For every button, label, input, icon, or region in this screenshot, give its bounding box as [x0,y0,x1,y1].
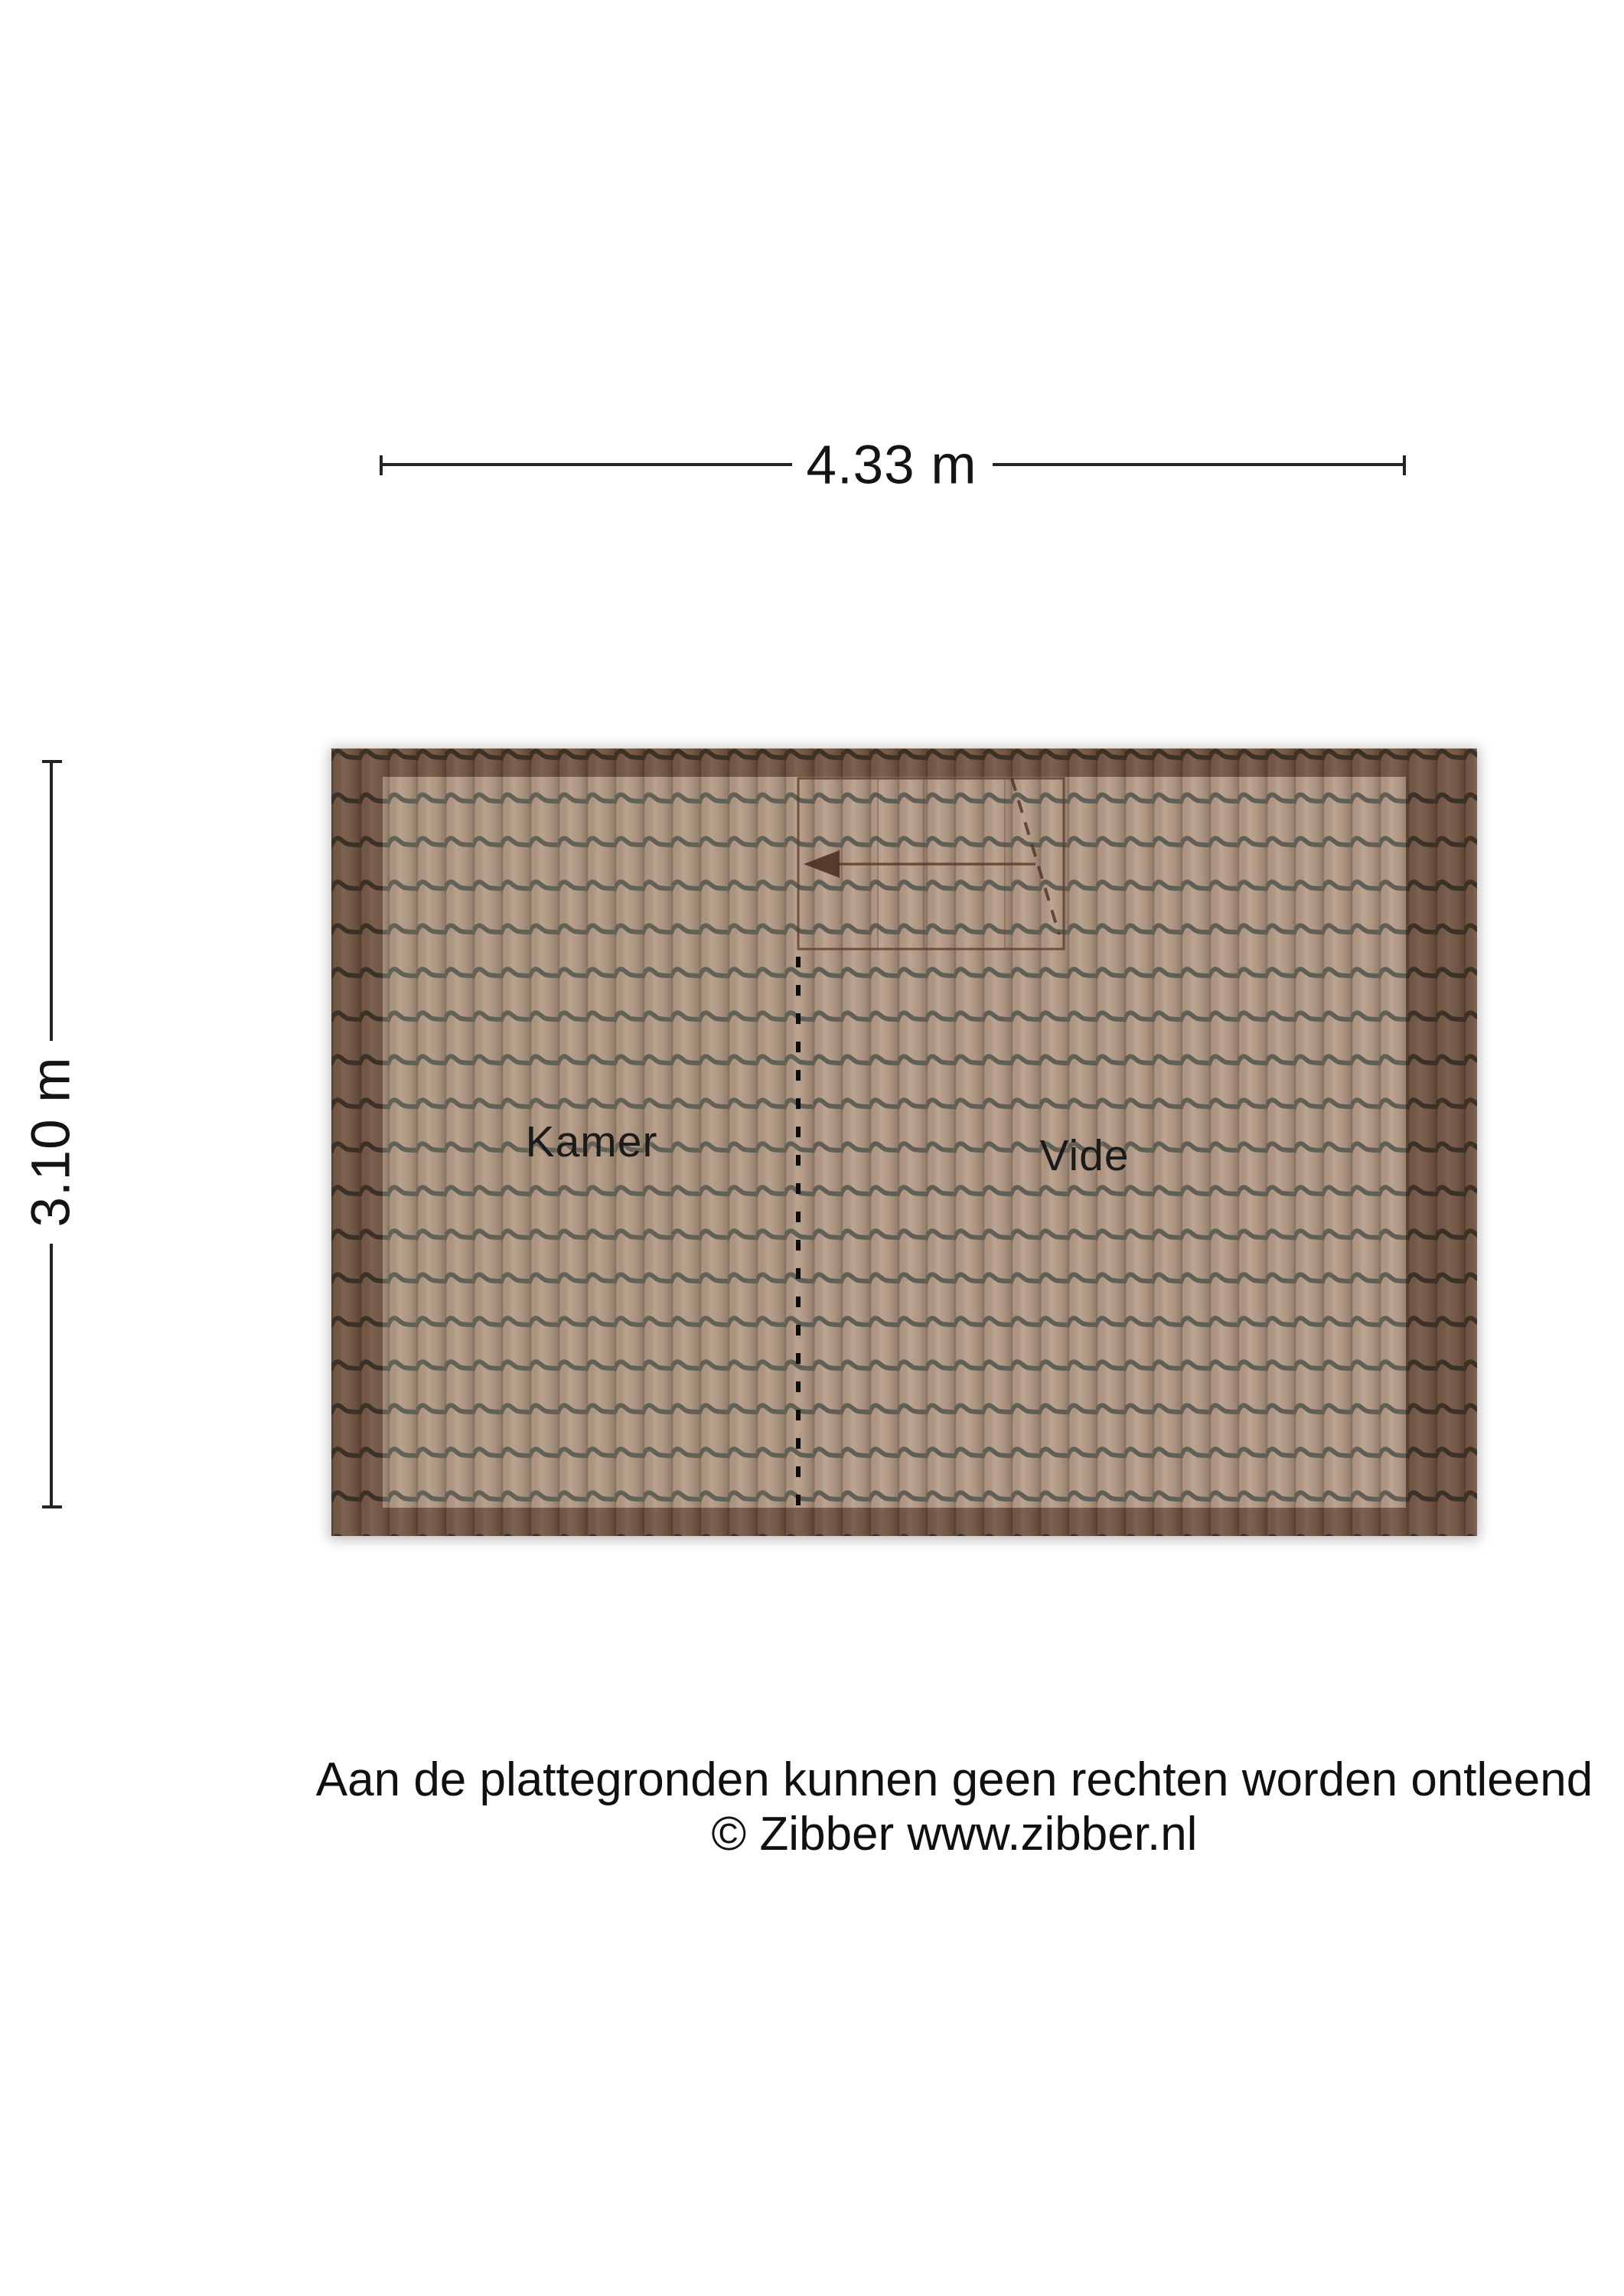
height-dimension-top-segment [50,762,53,1041]
width-dimension-left-segment [381,463,792,466]
room-label-kamer: Kamer [526,1117,658,1167]
disclaimer: Aan de plattegronden kunnen geen rechten… [316,1753,1593,1861]
disclaimer-line2: © Zibber www.zibber.nl [316,1807,1593,1861]
room-label-vide: Vide [1039,1130,1129,1181]
roof-tile-drawing [331,748,1477,1536]
height-dimension-bottom-segment [50,1244,53,1507]
width-dimension-right-segment [993,463,1404,466]
disclaimer-line1: Aan de plattegronden kunnen geen rechten… [316,1753,1593,1807]
width-dimension-label: 4.33 m [806,435,977,497]
height-dimension-bottom-tick [42,1505,62,1508]
floorplan-page: { "dimensions": { "width": "4.33 m", "he… [0,0,1624,2296]
height-dimension-label: 3.10 m [21,1056,83,1227]
width-dimension-right-tick [1403,455,1406,475]
floor-plan-image [331,748,1477,1536]
